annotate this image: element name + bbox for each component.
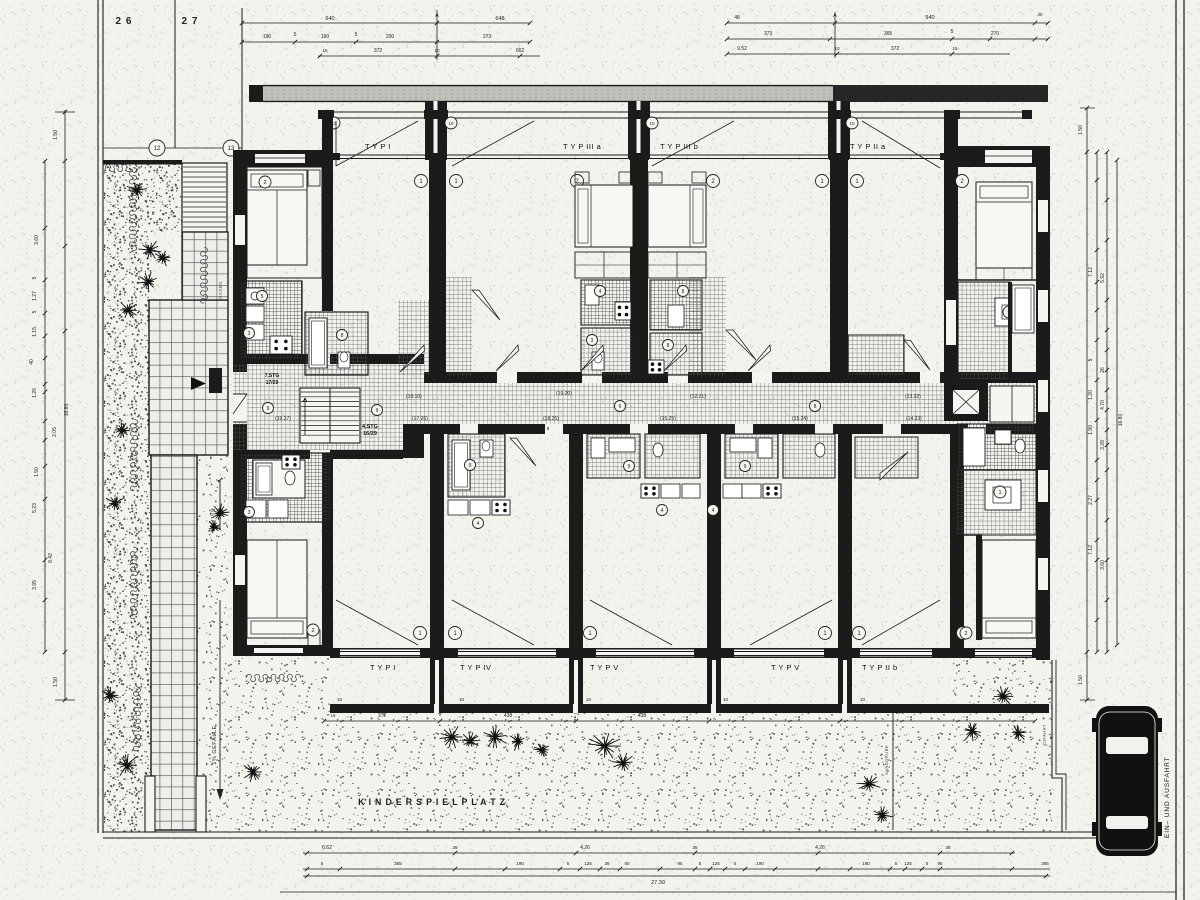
svg-text:95: 95 [937, 861, 943, 866]
svg-text:27.30: 27.30 [651, 880, 665, 886]
svg-text:(19.27): (19.27) [275, 416, 291, 422]
svg-text:40: 40 [29, 359, 35, 365]
svg-text:372: 372 [378, 713, 387, 719]
svg-text:9: 9 [376, 408, 379, 414]
svg-text:190: 190 [756, 861, 764, 866]
svg-text:1.50: 1.50 [1078, 675, 1084, 685]
svg-text:16.80: 16.80 [64, 404, 70, 417]
svg-text:4: 4 [712, 508, 715, 514]
svg-text:1.90: 1.90 [1088, 425, 1094, 435]
svg-text:8: 8 [667, 343, 670, 349]
svg-text:40: 40 [1037, 12, 1043, 17]
svg-text:10: 10 [649, 121, 655, 126]
svg-text:438: 438 [638, 713, 647, 719]
svg-text:2: 2 [311, 628, 314, 634]
svg-text:190: 190 [263, 34, 272, 40]
svg-text:1.50: 1.50 [1078, 125, 1084, 135]
svg-text:T Y P II a: T Y P II a [850, 142, 886, 151]
svg-text:(15.24): (15.24) [792, 416, 808, 422]
svg-text:10: 10 [434, 48, 440, 53]
svg-text:10: 10 [849, 121, 855, 126]
svg-text:5: 5 [734, 861, 737, 866]
svg-text:1.26: 1.26 [32, 388, 38, 398]
svg-text:(10.10): (10.10) [406, 394, 422, 400]
svg-text:15: 15 [331, 713, 336, 718]
svg-text:5.92: 5.92 [1100, 273, 1106, 283]
svg-text:T Y P III a: T Y P III a [563, 142, 602, 151]
svg-text:7.STG: 7.STG [265, 373, 280, 379]
svg-text:K I N D E R S P I E L P L A T: K I N D E R S P I E L P L A T Z [358, 797, 506, 807]
svg-text:T Y P IV: T Y P IV [460, 663, 491, 672]
svg-text:36: 36 [692, 845, 698, 850]
svg-text:662: 662 [516, 48, 525, 54]
svg-text:125: 125 [904, 861, 912, 866]
svg-text:648: 648 [495, 16, 504, 22]
svg-text:5: 5 [294, 32, 297, 38]
svg-text:A: A [833, 13, 837, 19]
svg-text:3.60: 3.60 [34, 235, 40, 245]
svg-text:95: 95 [677, 861, 683, 866]
svg-text:1.27: 1.27 [32, 291, 38, 301]
svg-text:7.12: 7.12 [1088, 267, 1094, 277]
svg-text:(15.25): (15.25) [660, 416, 676, 422]
svg-text:T Y P V: T Y P V [771, 663, 800, 672]
svg-text:EIN– UND AUSFAHRT: EIN– UND AUSFAHRT [1164, 756, 1171, 838]
svg-text:(14.23): (14.23) [906, 416, 922, 422]
svg-text:16/29: 16/29 [363, 431, 377, 437]
svg-text:4: 4 [661, 508, 664, 514]
svg-text:12: 12 [154, 146, 161, 152]
svg-text:3: 3 [248, 331, 251, 337]
svg-text:T Y P I: T Y P I [365, 142, 391, 151]
svg-text:1.15: 1.15 [32, 327, 38, 337]
svg-text:4.26: 4.26 [580, 845, 590, 851]
svg-text:15: 15 [322, 48, 328, 53]
svg-text:5.23: 5.23 [32, 503, 38, 513]
svg-text:9: 9 [628, 464, 631, 470]
svg-text:(12.21): (12.21) [690, 394, 706, 400]
svg-text:2 7: 2 7 [182, 16, 199, 27]
svg-text:2: 2 [964, 631, 967, 637]
svg-text:3: 3 [248, 510, 251, 516]
svg-text:6.62: 6.62 [322, 845, 332, 851]
svg-text:190: 190 [516, 861, 524, 866]
svg-text:36: 36 [945, 845, 951, 850]
svg-text:2 6: 2 6 [116, 16, 133, 27]
svg-text:8: 8 [682, 289, 685, 295]
svg-text:5: 5 [951, 29, 954, 35]
svg-text:9.52: 9.52 [737, 46, 747, 52]
svg-text:10: 10 [459, 697, 465, 702]
svg-text:T Y P III b: T Y P III b [660, 142, 698, 151]
svg-text:5: 5 [355, 32, 358, 38]
svg-text:365: 365 [394, 861, 402, 866]
svg-text:9: 9 [267, 406, 270, 412]
svg-text:4.70: 4.70 [1100, 400, 1106, 410]
svg-text:10: 10 [860, 697, 866, 702]
svg-text:125: 125 [712, 861, 720, 866]
svg-text:4.STG: 4.STG [362, 424, 378, 430]
svg-text:940: 940 [925, 15, 934, 21]
svg-text:8.42: 8.42 [48, 553, 54, 563]
svg-text:T Y P II b: T Y P II b [862, 663, 898, 672]
svg-text:15: 15 [952, 46, 958, 51]
svg-text:2.27: 2.27 [1088, 495, 1094, 505]
svg-text:1.50: 1.50 [53, 130, 59, 140]
svg-text:3: 3 [591, 338, 594, 344]
svg-text:8: 8 [814, 404, 817, 410]
svg-text:438: 438 [504, 713, 513, 719]
svg-text:36: 36 [452, 845, 458, 850]
svg-text:2.05: 2.05 [52, 427, 58, 437]
svg-text:16.80: 16.80 [1118, 414, 1124, 427]
svg-text:48: 48 [734, 15, 740, 21]
svg-text:(17.26): (17.26) [412, 416, 428, 422]
svg-text:6: 6 [619, 404, 622, 410]
svg-text:5: 5 [32, 310, 38, 313]
svg-text:80: 80 [624, 861, 630, 866]
svg-text:5: 5 [32, 276, 38, 279]
svg-text:10: 10 [448, 121, 454, 126]
svg-text:125: 125 [584, 861, 592, 866]
svg-text:3.60: 3.60 [1100, 560, 1106, 570]
svg-text:10: 10 [586, 697, 592, 702]
svg-text:190: 190 [862, 861, 870, 866]
svg-text:(18.25): (18.25) [543, 416, 559, 422]
svg-text:36: 36 [604, 861, 610, 866]
svg-text:10: 10 [834, 46, 840, 51]
svg-text:5: 5 [926, 861, 929, 866]
svg-text:RASEN: RASEN [218, 281, 223, 299]
svg-text:(19.20): (19.20) [556, 391, 572, 397]
svg-text:T Y P V: T Y P V [590, 663, 619, 672]
svg-text:372: 372 [374, 48, 383, 54]
svg-text:5: 5 [1088, 358, 1094, 361]
svg-text:7.12: 7.12 [1088, 545, 1094, 555]
svg-text:365: 365 [1041, 861, 1049, 866]
svg-text:270: 270 [991, 31, 1000, 37]
svg-text:273: 273 [483, 34, 492, 40]
svg-text:365: 365 [884, 31, 893, 37]
svg-text:9: 9 [744, 464, 747, 470]
svg-text:2: 2 [263, 180, 266, 186]
svg-text:8: 8 [341, 333, 344, 339]
svg-text:4.26: 4.26 [815, 845, 825, 851]
svg-text:1: 1 [998, 490, 1001, 496]
svg-text:5: 5 [699, 861, 702, 866]
svg-text:4: 4 [477, 521, 480, 527]
svg-text:5: 5 [567, 861, 570, 866]
svg-text:ZUFAHRT: ZUFAHRT [1042, 724, 1047, 746]
svg-text:4: 4 [599, 289, 602, 295]
svg-text:5: 5 [895, 861, 898, 866]
svg-text:1.50: 1.50 [34, 467, 40, 477]
svg-text:3.95: 3.95 [32, 580, 38, 590]
svg-text:1.50: 1.50 [53, 677, 59, 687]
svg-text:5: 5 [321, 861, 324, 866]
svg-text:372: 372 [891, 46, 900, 52]
svg-text:SANDGRUBE: SANDGRUBE [884, 745, 889, 775]
svg-text:1.20: 1.20 [1088, 390, 1094, 400]
svg-text:640: 640 [325, 16, 334, 22]
svg-text:1% GEFÄLLE: 1% GEFÄLLE [211, 725, 218, 764]
svg-text:(13.22): (13.22) [905, 394, 921, 400]
svg-text:T Y P I: T Y P I [370, 663, 396, 672]
svg-text:200: 200 [386, 34, 395, 40]
svg-text:9: 9 [469, 463, 472, 469]
svg-text:373: 373 [764, 31, 773, 37]
svg-text:10: 10 [723, 697, 729, 702]
svg-text:17/29: 17/29 [266, 380, 279, 386]
svg-text:10: 10 [337, 697, 343, 702]
svg-text:3.28: 3.28 [1100, 440, 1106, 450]
svg-text:5: 5 [261, 294, 264, 300]
svg-text:190: 190 [321, 34, 330, 40]
